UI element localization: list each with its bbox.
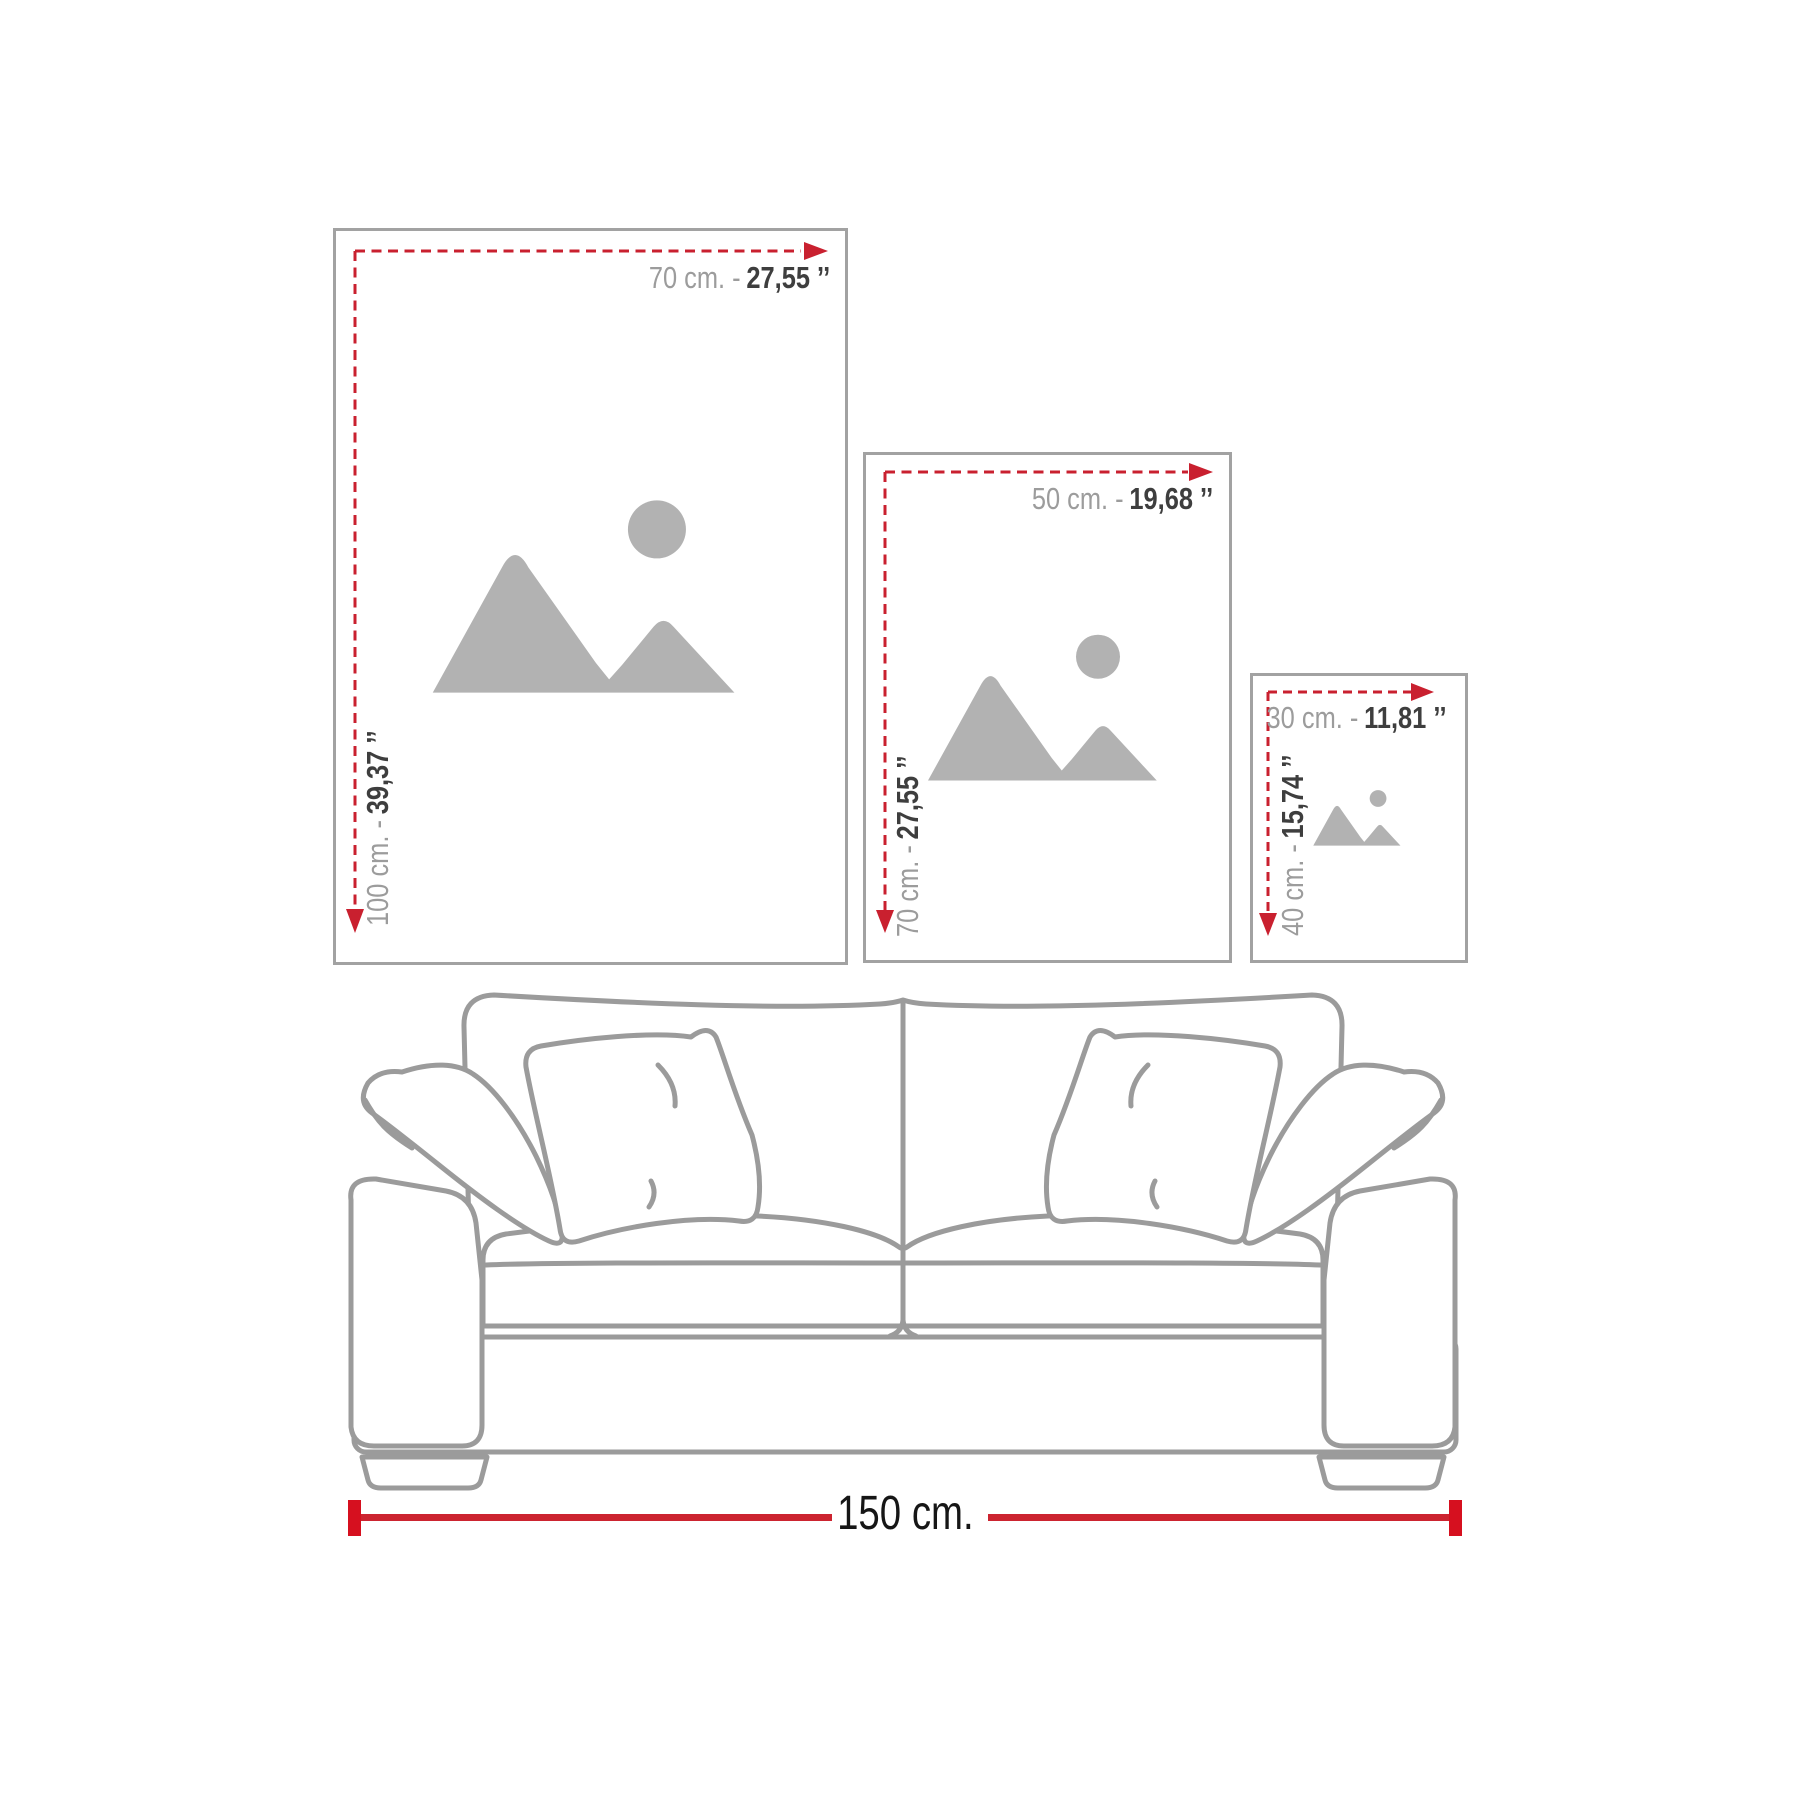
width-inch-text: 27,55 ’’: [746, 260, 830, 295]
sofa-width-text: 150 cm.: [837, 1490, 974, 1538]
poster-frame-50x70: 50 cm. -19,68 ’’ 70 cm. -27,55 ’’: [863, 452, 1232, 963]
sofa-left-pillow: [526, 1031, 760, 1243]
width-label: 50 cm. -19,68 ’’: [992, 483, 1213, 516]
poster-frame-70x100: 70 cm. -27,55 ’’ 100 cm. -39,37 ’’: [333, 228, 848, 965]
arrowhead-right-icon: [804, 242, 828, 260]
sofa-right-arm: [1324, 1179, 1455, 1446]
sofa-width-measure-line-right: [988, 1514, 1449, 1521]
width-inch-text: 11,81 ’’: [1365, 700, 1447, 735]
sofa-illustration: [320, 975, 1490, 1495]
sofa-right-pillow: [1046, 1031, 1280, 1243]
sofa-width-label: 150 cm.: [818, 1490, 992, 1538]
sofa-legs: [362, 1457, 1444, 1488]
height-cm-text: 40 cm. -: [1275, 844, 1310, 936]
sofa-left-arm: [351, 1179, 482, 1446]
poster-size-guide-diagram: 70 cm. -27,55 ’’ 100 cm. -39,37 ’’ 50 cm…: [0, 0, 1800, 1800]
height-cm-text: 70 cm. -: [890, 845, 925, 937]
measure-end-cap-right: [1449, 1500, 1462, 1536]
height-label: 100 cm. -39,37 ’’: [362, 688, 395, 926]
height-cm-text: 100 cm. -: [360, 820, 395, 926]
width-label: 70 cm. -27,55 ’’: [609, 262, 830, 295]
image-placeholder-icon: [426, 491, 756, 702]
width-inch-text: 19,68 ’’: [1129, 481, 1213, 516]
height-label: 70 cm. -27,55 ’’: [892, 716, 925, 937]
image-placeholder-icon: [1311, 788, 1407, 849]
arrowhead-right-icon: [1411, 683, 1434, 701]
measure-end-cap-left: [348, 1500, 361, 1536]
sofa-base: [354, 1337, 1456, 1452]
sofa-width-measure-line-left: [361, 1514, 832, 1521]
poster-frame-30x40: 30 cm. -11,81 ’’ 40 cm. -15,74 ’’: [1250, 673, 1468, 963]
height-inch-text: 39,37 ’’: [360, 730, 395, 814]
image-placeholder-icon: [923, 628, 1173, 788]
width-label: 30 cm. -11,81 ’’: [1227, 702, 1447, 735]
arrowhead-right-icon: [1189, 463, 1213, 481]
width-cm-text: 50 cm. -: [1032, 481, 1124, 516]
width-cm-text: 70 cm. -: [649, 260, 741, 295]
height-inch-text: 27,55 ’’: [890, 756, 925, 840]
height-inch-text: 15,74 ’’: [1275, 755, 1310, 839]
height-label: 40 cm. -15,74 ’’: [1277, 715, 1310, 936]
